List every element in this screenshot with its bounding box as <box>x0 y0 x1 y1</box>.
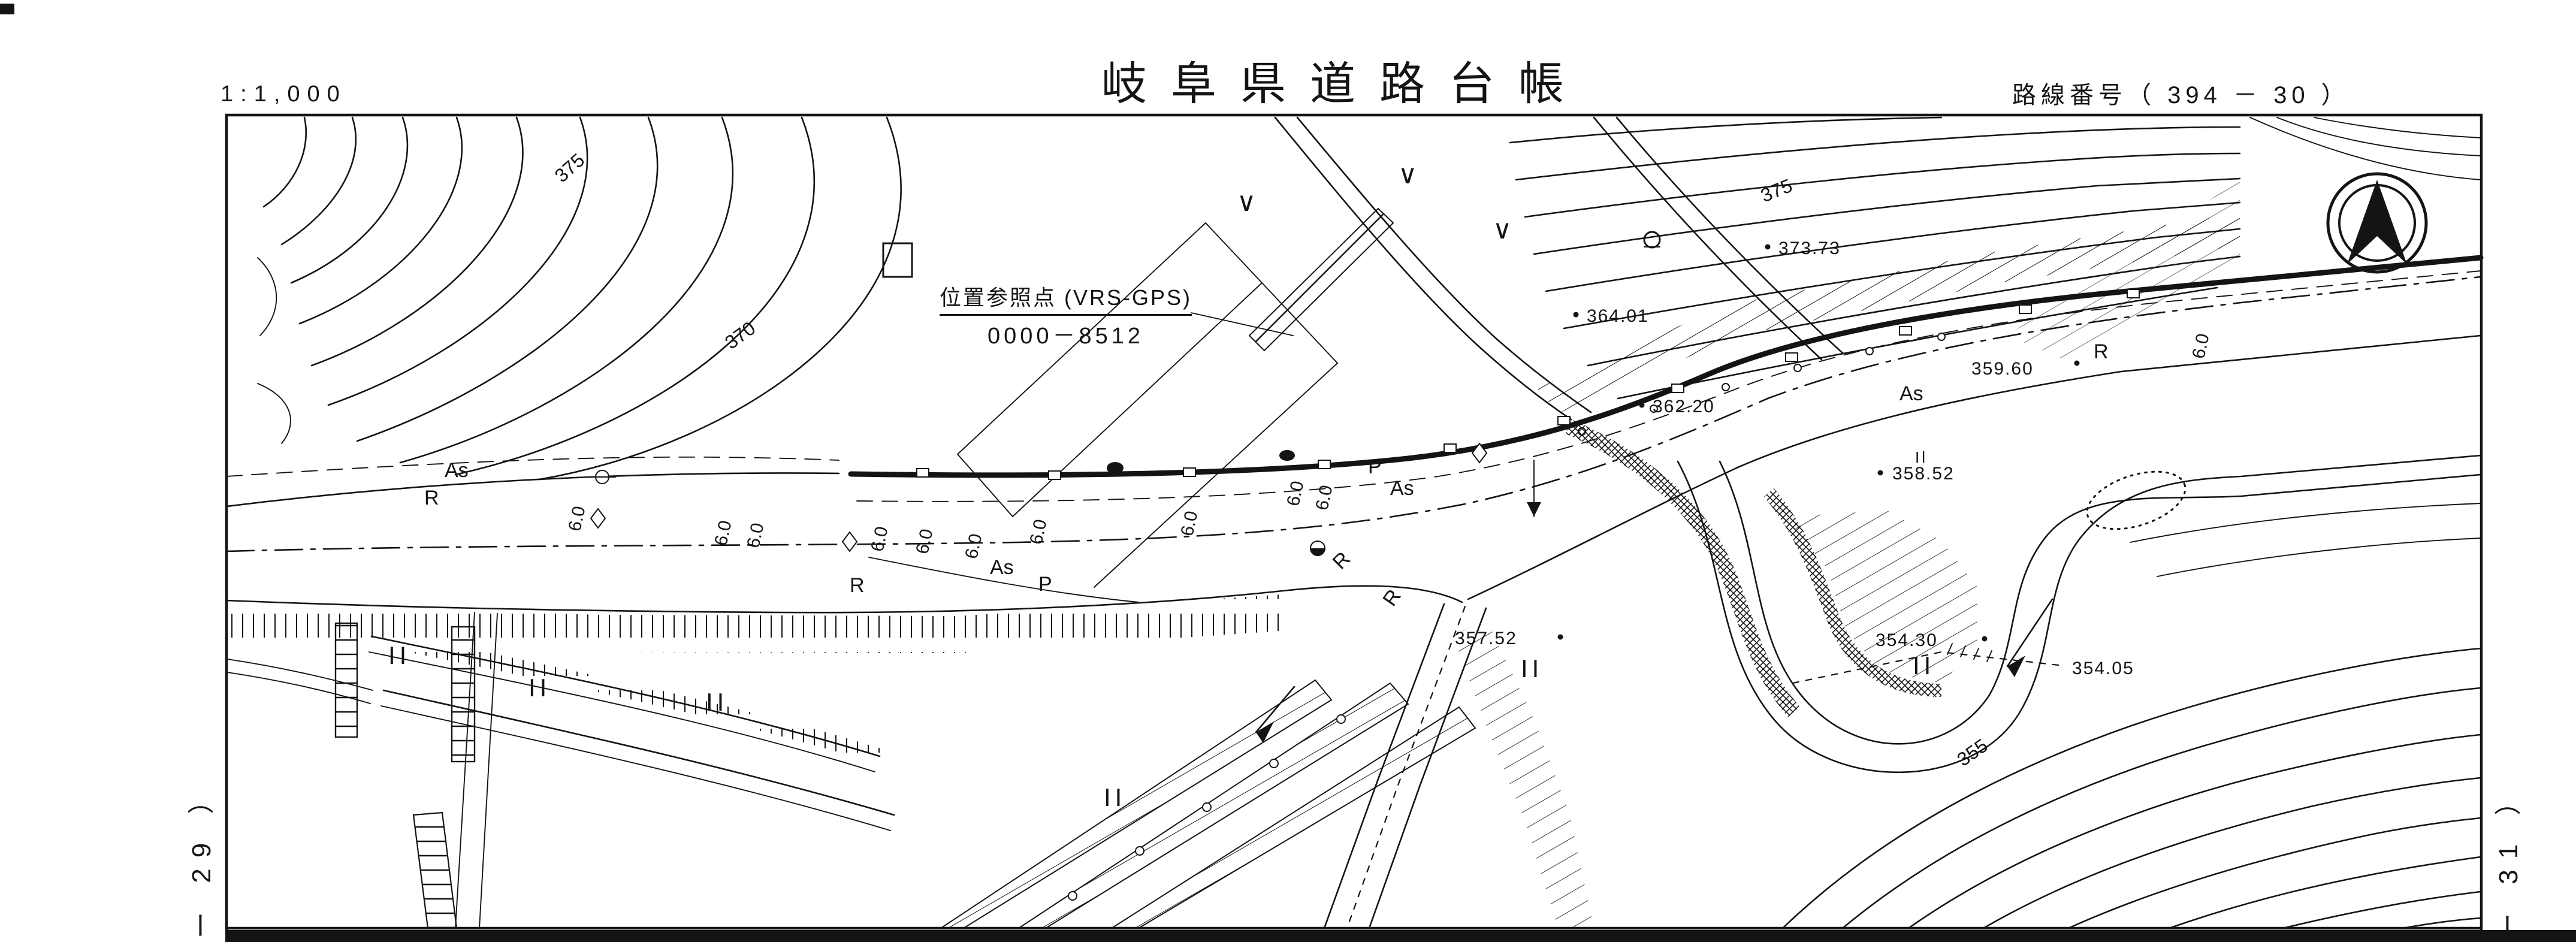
diagonal-roads <box>1249 117 1843 419</box>
spring-icon <box>1644 232 1660 247</box>
spot-elevation-dot <box>1639 403 1645 408</box>
road-width-label: 6.0 <box>711 519 736 548</box>
spot-elevation-dot <box>2074 361 2080 366</box>
spot-elevation-label: 354.30 <box>1876 630 1938 650</box>
spot-elevation-label: 373.73 <box>1778 238 1841 258</box>
vegetation-mark: ∨ <box>1237 188 1256 217</box>
road-surface-label: As <box>445 459 469 482</box>
slope-hatch-bands <box>228 180 2240 928</box>
road-surface-label: As <box>990 556 1014 579</box>
landuse-mark: II <box>388 641 410 669</box>
spot-elevation-label: 354.05 <box>2072 659 2134 678</box>
road-width-label: 6.0 <box>1284 479 1308 508</box>
road-width-labels: 6.06.06.06.06.06.06.06.06.06.06.0 <box>565 332 2213 561</box>
contour-elevation-label: 375 <box>551 149 589 186</box>
road-centerline <box>227 277 2481 551</box>
spot-elevation-dot <box>1982 636 1988 642</box>
tree-dot-icon <box>1279 450 1295 461</box>
building-outline <box>883 243 912 277</box>
tree-dot-icon <box>1107 462 1124 474</box>
road-width-label: 6.0 <box>565 505 590 533</box>
vegetation-mark: ∨ <box>1493 215 1512 244</box>
spot-elevation-label: 364.01 <box>1587 306 1649 326</box>
scan-artifact <box>0 4 14 14</box>
marker-diamond-icon <box>591 509 605 528</box>
road-width-label: 6.0 <box>913 527 937 556</box>
diagonal-terrace-bands <box>941 680 1475 928</box>
road-surface-label: As <box>1390 477 1414 500</box>
north-arrow-icon <box>2328 174 2426 272</box>
road-surface-label: P <box>1368 455 1382 478</box>
marker-diamond-icon <box>842 532 857 551</box>
map-canvas: 373.73364.01362.20359.60358.52357.52354.… <box>0 0 2576 942</box>
contour-elevation-label: 370 <box>721 317 759 354</box>
spot-elevation-dot <box>1878 470 1883 476</box>
vegetation-mark: ∨ <box>1398 160 1417 189</box>
spot-elevation-dot <box>1765 244 1771 250</box>
road-surface-label: P <box>1038 573 1052 596</box>
spot-elevation-label: 358.52 <box>1892 464 1955 484</box>
down-arrow-icon <box>1527 460 1541 517</box>
spot-elevation-label: 357.52 <box>1455 629 1517 648</box>
road-width-label: 6.0 <box>1026 518 1051 547</box>
contour-elevation-label: 355 <box>1953 735 1991 771</box>
road-width-label: 6.0 <box>2189 332 2213 361</box>
spot-elevation-label: 359.60 <box>1971 359 2034 379</box>
road-width-label: 6.0 <box>962 532 986 561</box>
road-width-label: 6.0 <box>868 525 892 554</box>
spot-elevation-label: 362.20 <box>1653 397 1715 416</box>
road-width-label: 6.0 <box>1312 484 1337 512</box>
contour-elevation-label: 375 <box>1757 174 1795 206</box>
road-surface-label: R <box>1328 547 1355 573</box>
spot-elevation-dot <box>1558 635 1563 640</box>
landuse-mark: II <box>1104 783 1126 811</box>
road-surface-label: R <box>2094 340 2109 363</box>
cliff-outline <box>2080 461 2193 540</box>
parcel-boundaries <box>869 223 1337 602</box>
landuse-mark: II <box>706 688 728 716</box>
hairpin-road <box>1569 427 2481 772</box>
landuse-mark: II <box>529 674 551 702</box>
landuse-mark: II <box>1913 651 1935 680</box>
terrace-wall-bands <box>228 623 894 928</box>
road-ledger-sheet: 1:1,000 岐阜県道路台帳 路線番号（ 394 － 30 ） ー 29 ） … <box>0 0 2576 942</box>
road-surface-label: R <box>850 574 865 597</box>
road-surface-label: R <box>1378 585 1405 611</box>
spot-elevation-dot <box>1574 312 1579 318</box>
landuse-mark: Il <box>1915 448 1928 466</box>
landuse-mark: II <box>1521 654 1543 683</box>
road-surface-label: R <box>424 487 439 509</box>
road-width-label: 6.0 <box>1177 509 1202 538</box>
map-symbols <box>589 232 1660 555</box>
road-surface-label: As <box>1899 382 1923 405</box>
sheet-bottom-bar <box>227 930 2576 942</box>
